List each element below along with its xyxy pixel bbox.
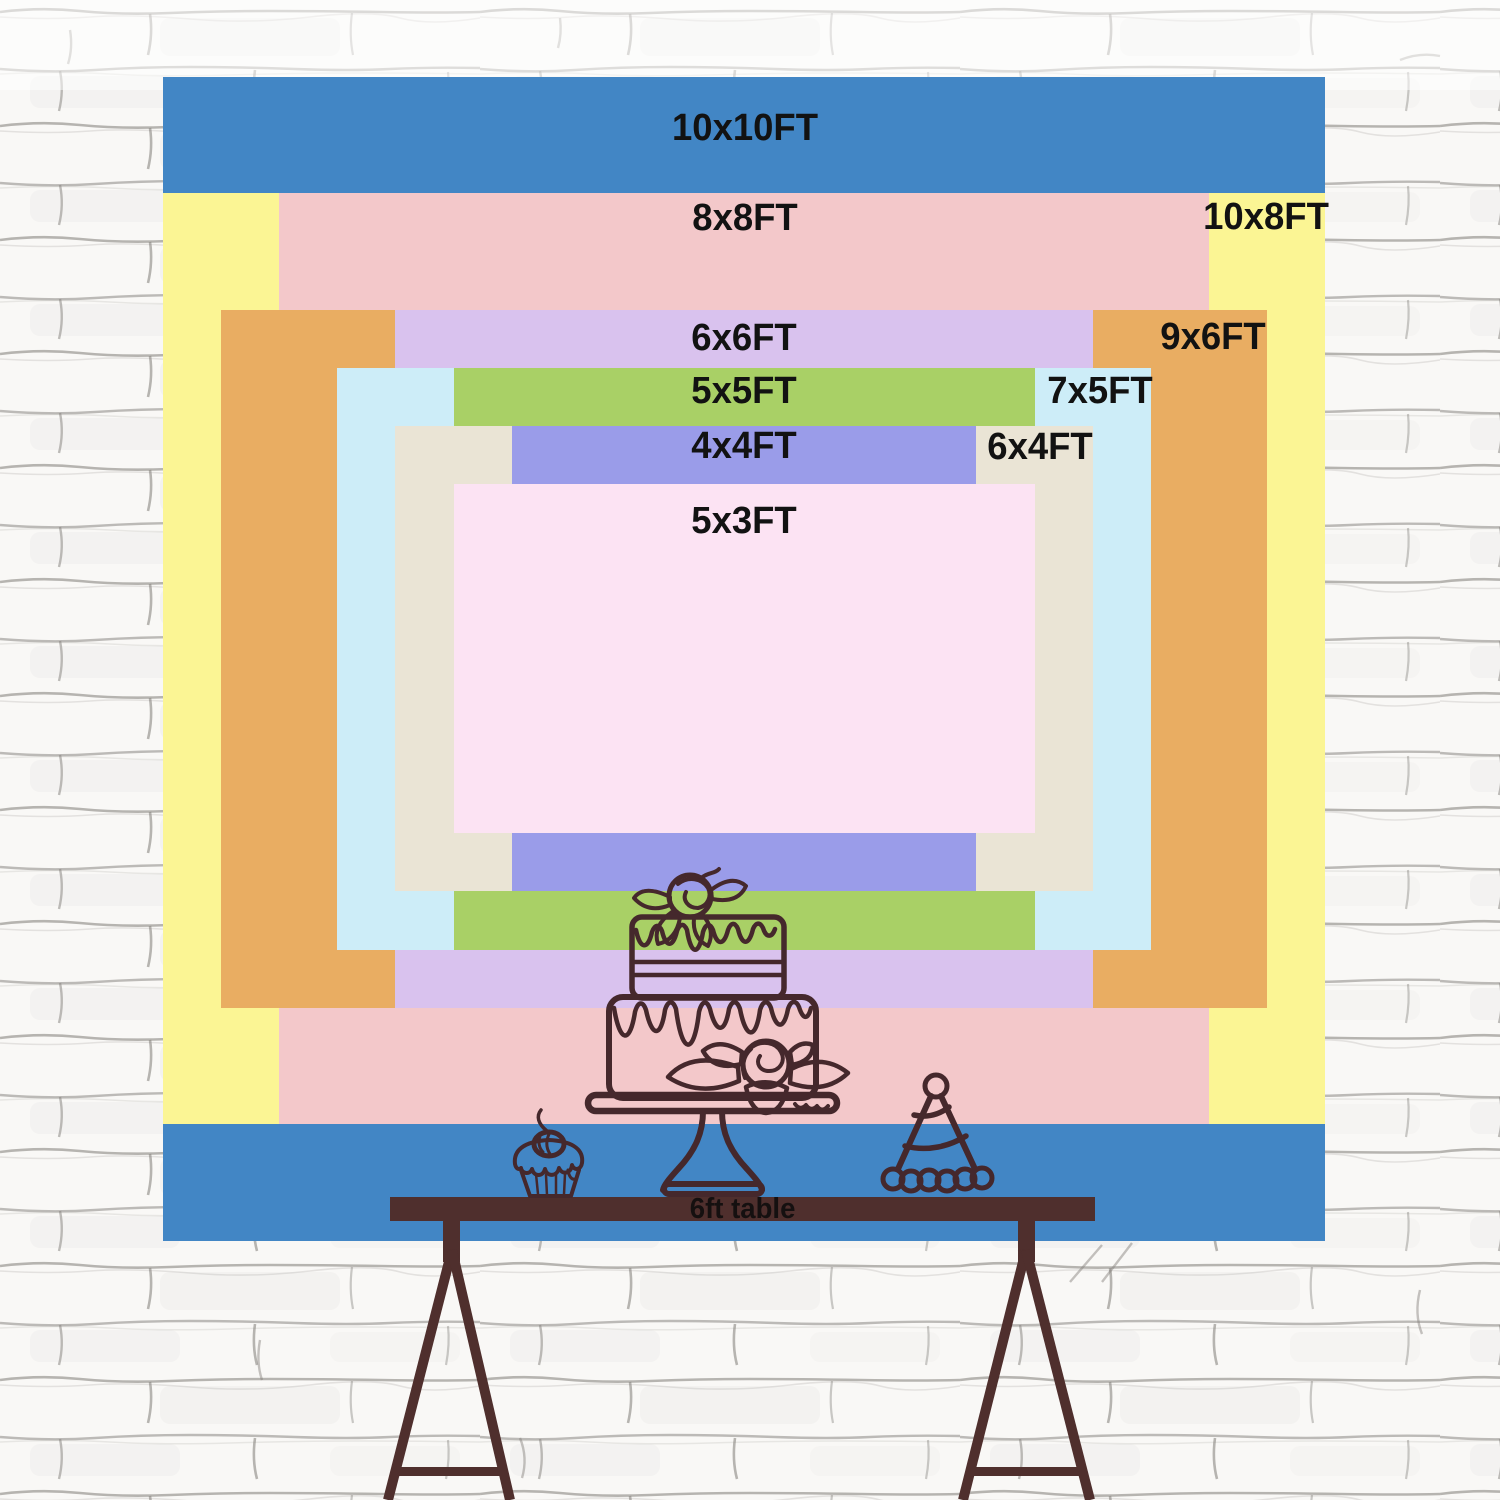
table-trestle-legs <box>388 1220 1090 1500</box>
cupcake-drawing <box>515 1110 582 1196</box>
tiered-cake-drawing <box>588 869 848 1194</box>
backdrop-size-chart: 10x10FT10x8FT8x8FT9x6FT6x6FT7x5FT5x5FT6x… <box>0 0 1500 1500</box>
party-hat-drawing <box>883 1075 992 1191</box>
line-art-overlay <box>0 0 1500 1500</box>
